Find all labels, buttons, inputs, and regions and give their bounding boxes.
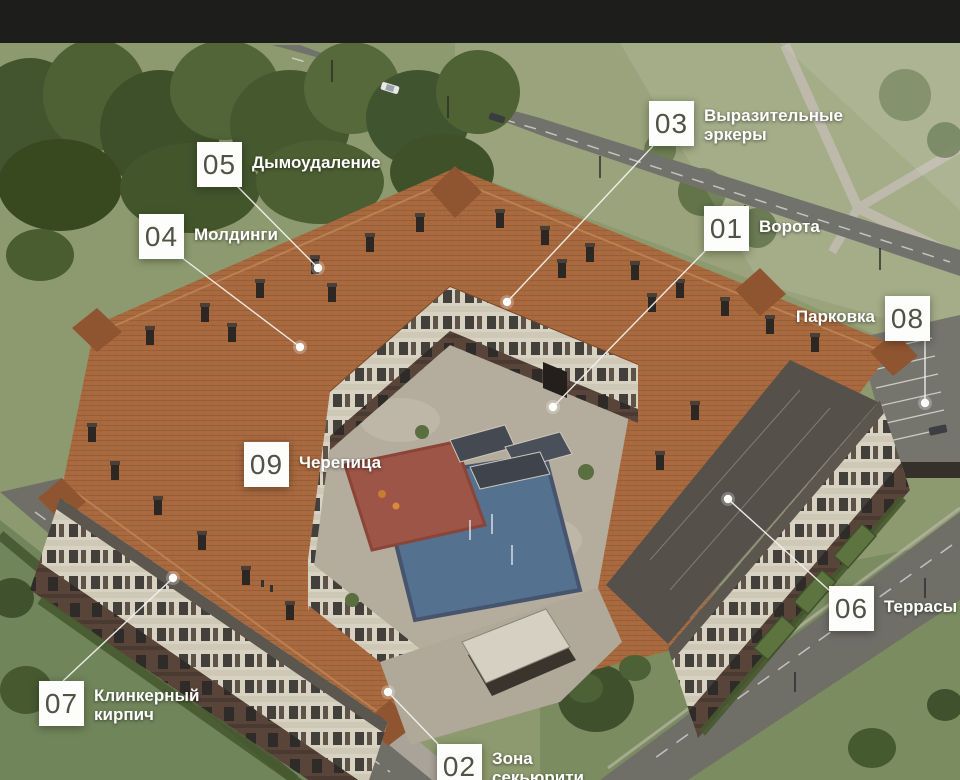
callout-label: Ворота (759, 206, 820, 236)
callout-number-badge[interactable]: 01 (704, 206, 749, 251)
callout-label: Молдинги (194, 214, 278, 244)
callout-07-clinker-brick: 07 Клинкерный кирпич (39, 681, 199, 726)
callout-02-security-zone: 02 Зона секьюрити (437, 744, 584, 780)
callout-number-badge[interactable]: 04 (139, 214, 184, 259)
callout-03-bay-windows: 03 Выразительные эркеры (649, 101, 843, 146)
callout-04-moldings: 04 Молдинги (139, 214, 278, 259)
callout-number-badge[interactable]: 06 (829, 586, 874, 631)
callout-label: Террасы (884, 586, 957, 616)
callout-number-badge[interactable]: 02 (437, 744, 482, 780)
callout-number-badge[interactable]: 03 (649, 101, 694, 146)
callout-number-badge[interactable]: 08 (885, 296, 930, 341)
callout-number-badge[interactable]: 07 (39, 681, 84, 726)
callout-05-smoke-removal: 05 Дымоудаление (197, 142, 381, 187)
callout-label: Клинкерный кирпич (94, 681, 199, 724)
aerial-render-annotated: 05 Дымоудаление 04 Молдинги 03 Выразител… (0, 0, 960, 780)
callout-label: Дымоудаление (252, 142, 381, 172)
callout-08-parking: 08 Парковка (796, 296, 930, 341)
callout-label: Парковка (796, 296, 875, 326)
callout-09-roof-tiles: 09 Черепица (244, 442, 381, 487)
callout-label: Зона секьюрити (492, 744, 584, 780)
callout-label: Черепица (299, 442, 381, 472)
top-letterbox-bar (0, 0, 960, 43)
callout-label: Выразительные эркеры (704, 101, 843, 144)
callout-number-badge[interactable]: 05 (197, 142, 242, 187)
callout-01-gates: 01 Ворота (704, 206, 820, 251)
callout-number-badge[interactable]: 09 (244, 442, 289, 487)
callout-06-terraces: 06 Террасы (829, 586, 957, 631)
